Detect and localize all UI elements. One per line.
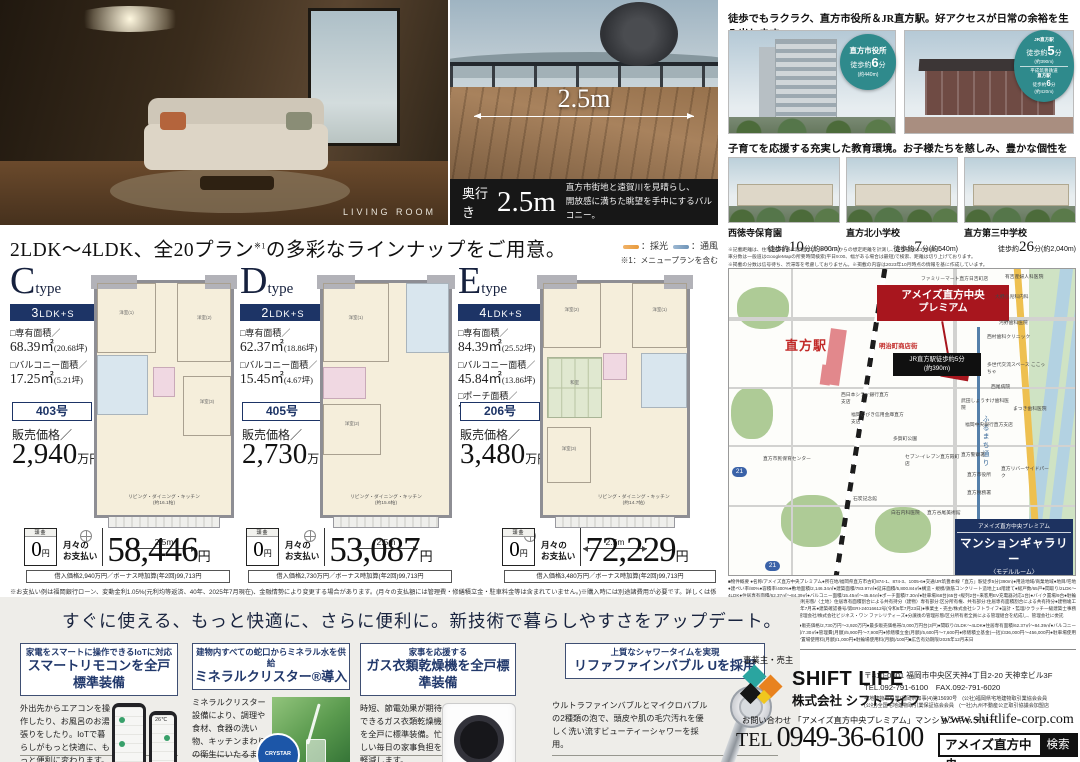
bedroom-2: 洋室(2)	[323, 404, 381, 455]
plan-c-loan-note: 借入価格2,940万円／ボーナス時加算(年2回)99,713円	[26, 570, 230, 583]
website-url: www.shiftlife-corp.com	[936, 712, 1078, 728]
station-plaza	[905, 117, 1073, 133]
plan-c-room-number: 403号	[12, 402, 92, 421]
plan-e-price: 3,480万円	[460, 440, 549, 469]
trees	[729, 117, 895, 133]
walk-time-box: JR直方駅徒歩約5分 (約390m)	[893, 353, 981, 376]
balcony-description: 直方市街地と遠賀川を見晴らし、 開放感に満ちた眺望を手中にするバルコニー。	[566, 181, 718, 222]
depth-value: 2.5m	[497, 188, 556, 217]
plan-legend: ：採光 ：通風 ※1：メニュープランを含む	[562, 239, 718, 266]
station-badge: JR直方駅 徒歩約5分 (約390m) 平成筑豊鉄道 直方駅 徒歩約6分 (約4…	[1014, 30, 1074, 102]
ldk-label: リビング・ダイニング・キッチン(約15.6帖)	[331, 495, 442, 508]
plan-d-room-number: 405号	[242, 402, 322, 421]
plan-c-price: 2,940万円	[12, 440, 101, 469]
gas-dryer-image	[442, 703, 516, 762]
pillow	[286, 112, 312, 130]
plan-d-loan-note: 借入価格2,730万円／ボーナス時加算(年2回)99,713円	[248, 570, 452, 583]
search-keyword: アメイズ直方中央	[940, 735, 1040, 755]
bedroom-1: 洋室(1)	[323, 283, 389, 362]
school-building	[855, 184, 951, 206]
bathroom	[97, 355, 148, 415]
depth-arrow: 2.5m	[474, 84, 694, 117]
bedroom-3: 洋室(3)	[183, 376, 231, 436]
school-photo-elementary	[846, 157, 958, 223]
closet	[153, 367, 174, 397]
ceiling-light	[70, 6, 190, 32]
area-map: 直方駅 アメイズ直方中央 プレミアム 明治町商店街 JR直方駅徒歩約5分 (約3…	[728, 268, 1076, 576]
bathroom	[641, 353, 687, 409]
plan-c-type: Ctype	[10, 262, 61, 300]
plan-d-layout-badge: 2LDK+S	[240, 304, 326, 321]
search-keyword-box: アメイズ直方中央 検索	[938, 733, 1078, 757]
feature-mineral-crystar: 建物内すべての蛇口からミネラル水を供給ミネラルクリスター®導入 ミネラルクリスタ…	[192, 643, 350, 756]
flyer-page: LIVING ROOM 2.5m 奥行き 2.5m 直方市街地と遠賀川を見晴らし…	[0, 0, 1080, 762]
mineral-water-image: CRYSTAR	[272, 697, 350, 762]
closet	[323, 367, 366, 399]
feature-gas-dryer: 家事を応援するガス衣類乾燥機を全戸標準装備 時短、節電効果が期待できるガス衣類乾…	[360, 643, 516, 756]
depth-arrow-label: 2.5m	[474, 84, 694, 114]
search-button-label: 検索	[1040, 735, 1076, 755]
school-building	[737, 184, 833, 206]
plans-headline: 2LDK〜4LDK、全20プラン※1の多彩なラインナップをご用意。	[10, 233, 566, 262]
plan-d-floorplan: 洋室(1) 洋室(2) リビング・ダイニング・キッチン(約15.6帖) 2.5m	[320, 280, 452, 518]
access-notes: ※記載距離は、住宅地図を基に建物のエントランスからの想定距離を計測し、徒歩分数は…	[728, 247, 1076, 269]
park	[737, 287, 789, 329]
trees	[729, 206, 839, 222]
living-room-caption: LIVING ROOM	[343, 207, 436, 217]
sofa	[144, 124, 328, 170]
school-photo-nursery	[728, 157, 840, 223]
plan-c-specs: □専有面積／68.39㎡(20.68坪) □バルコニー面積／17.25㎡(5.2…	[10, 326, 102, 389]
map-station-label: 直方駅	[785, 335, 827, 354]
shiftlife-logo-icon	[740, 666, 786, 712]
living-room-photo: LIVING ROOM	[0, 0, 448, 225]
company-address: 〒810-0001 福岡市中央区天神4丁目2-20 天神幸ビル3F TEL.09…	[864, 670, 1076, 709]
plan-e-room-number: 206号	[460, 402, 540, 421]
route-badge: 21	[732, 467, 747, 477]
plan-d-type: Dtype	[240, 262, 293, 300]
gallery-box: アメイズ直方中央プレミアム マンションギャラリー 〈モデルルーム〉	[955, 519, 1073, 576]
balcony-photo: 2.5m 奥行き 2.5m 直方市街地と遠賀川を見晴らし、 開放感に満ちた眺望を…	[450, 0, 718, 225]
balcony-strip	[555, 517, 676, 528]
park	[731, 387, 773, 439]
city-hall-building	[775, 39, 837, 119]
plan-e-layout-badge: 4LDK+S	[458, 304, 544, 321]
balcony-strip	[108, 517, 221, 528]
plan-d-price: 2,730万円	[242, 440, 331, 469]
city-hall-badge: 直方市役所 徒歩約6分 (約440m)	[840, 34, 896, 90]
badge-divider	[1020, 66, 1068, 67]
plan-e-type: Etype	[458, 262, 507, 300]
trees	[847, 206, 957, 222]
bedroom-1: 洋室(1)	[632, 283, 687, 348]
balcony-strip	[333, 517, 439, 528]
phone-number: TEL 0949-36-6100	[736, 722, 923, 754]
bedroom-2: 洋室(2)	[543, 283, 601, 348]
plan-d-payment: 頭金0円 月々のお支払い 53,087円	[246, 528, 432, 566]
ventilation-swatch-icon	[673, 245, 689, 249]
features-headline: すぐに使える、もっと快適に、さらに便利に。新技術で暮らしやすさをアップデート。	[62, 608, 782, 633]
route-badge: 21	[765, 561, 780, 571]
plan-c-floorplan: 洋室(1) 洋室(2) 洋室(3) リビング・ダイニング・キッチン(約16.1帖…	[94, 280, 234, 518]
smartphone-image: 26℃	[112, 703, 178, 762]
bedroom-3: 洋室(3)	[547, 427, 590, 483]
school-photo-junior-high	[964, 157, 1076, 223]
shopping-street-label: 明治町商店街	[879, 341, 917, 350]
tatami-room: 和室	[547, 357, 602, 417]
plan-d-specs: □専有面積／62.37㎡(18.86坪) □バルコニー面積／15.45㎡(4.6…	[240, 326, 332, 389]
pillow	[160, 112, 186, 130]
plan-c-layout-badge: 3LDK+S	[10, 304, 96, 321]
daylight-swatch-icon	[623, 245, 639, 249]
closet	[603, 353, 626, 381]
plan-e-floorplan: 洋室(2) 洋室(1) 和室 洋室(3) リビング・ダイニング・キッチン(約14…	[540, 280, 690, 518]
property-label: アメイズ直方中央 プレミアム	[877, 285, 1009, 321]
depth-prefix: 奥行き	[462, 183, 495, 221]
headline-footnote-mark: ※1	[254, 242, 266, 251]
plan-e-loan-note: 借入価格3,480万円／ボーナス時加算(年2回)99,713円	[504, 570, 716, 583]
ldk-label: リビング・ダイニング・キッチン(約16.1帖)	[105, 495, 223, 508]
bedroom-2: 洋室(2)	[177, 283, 231, 362]
trees	[965, 206, 1075, 222]
plan-e-payment: 頭金0円 月々のお支払い 72,229円	[502, 528, 688, 566]
wicker-chair	[600, 2, 678, 66]
legend-note: ※1：メニュープランを含む	[562, 255, 718, 266]
coffee-table	[200, 176, 274, 190]
double-arrow-line	[474, 116, 694, 117]
seller-role-label: 事業主・売主	[743, 654, 793, 666]
bathroom	[406, 283, 449, 353]
ldk-label: リビング・ダイニング・キッチン(約14.7帖)	[586, 495, 681, 508]
school-building	[973, 184, 1069, 206]
feature-smart-remote: 家電をスマートに操作できるIoTに対応スマートリモコンを全戸標準装備 外出先から…	[20, 643, 178, 756]
bedroom-1: 洋室(1)	[97, 283, 156, 353]
plan-c-payment: 頭金0円 月々のお支払い 58,446円	[24, 528, 210, 566]
balcony-caption-bar: 奥行き 2.5m 直方市街地と遠賀川を見晴らし、 開放感に満ちた眺望を手中にする…	[450, 179, 718, 225]
